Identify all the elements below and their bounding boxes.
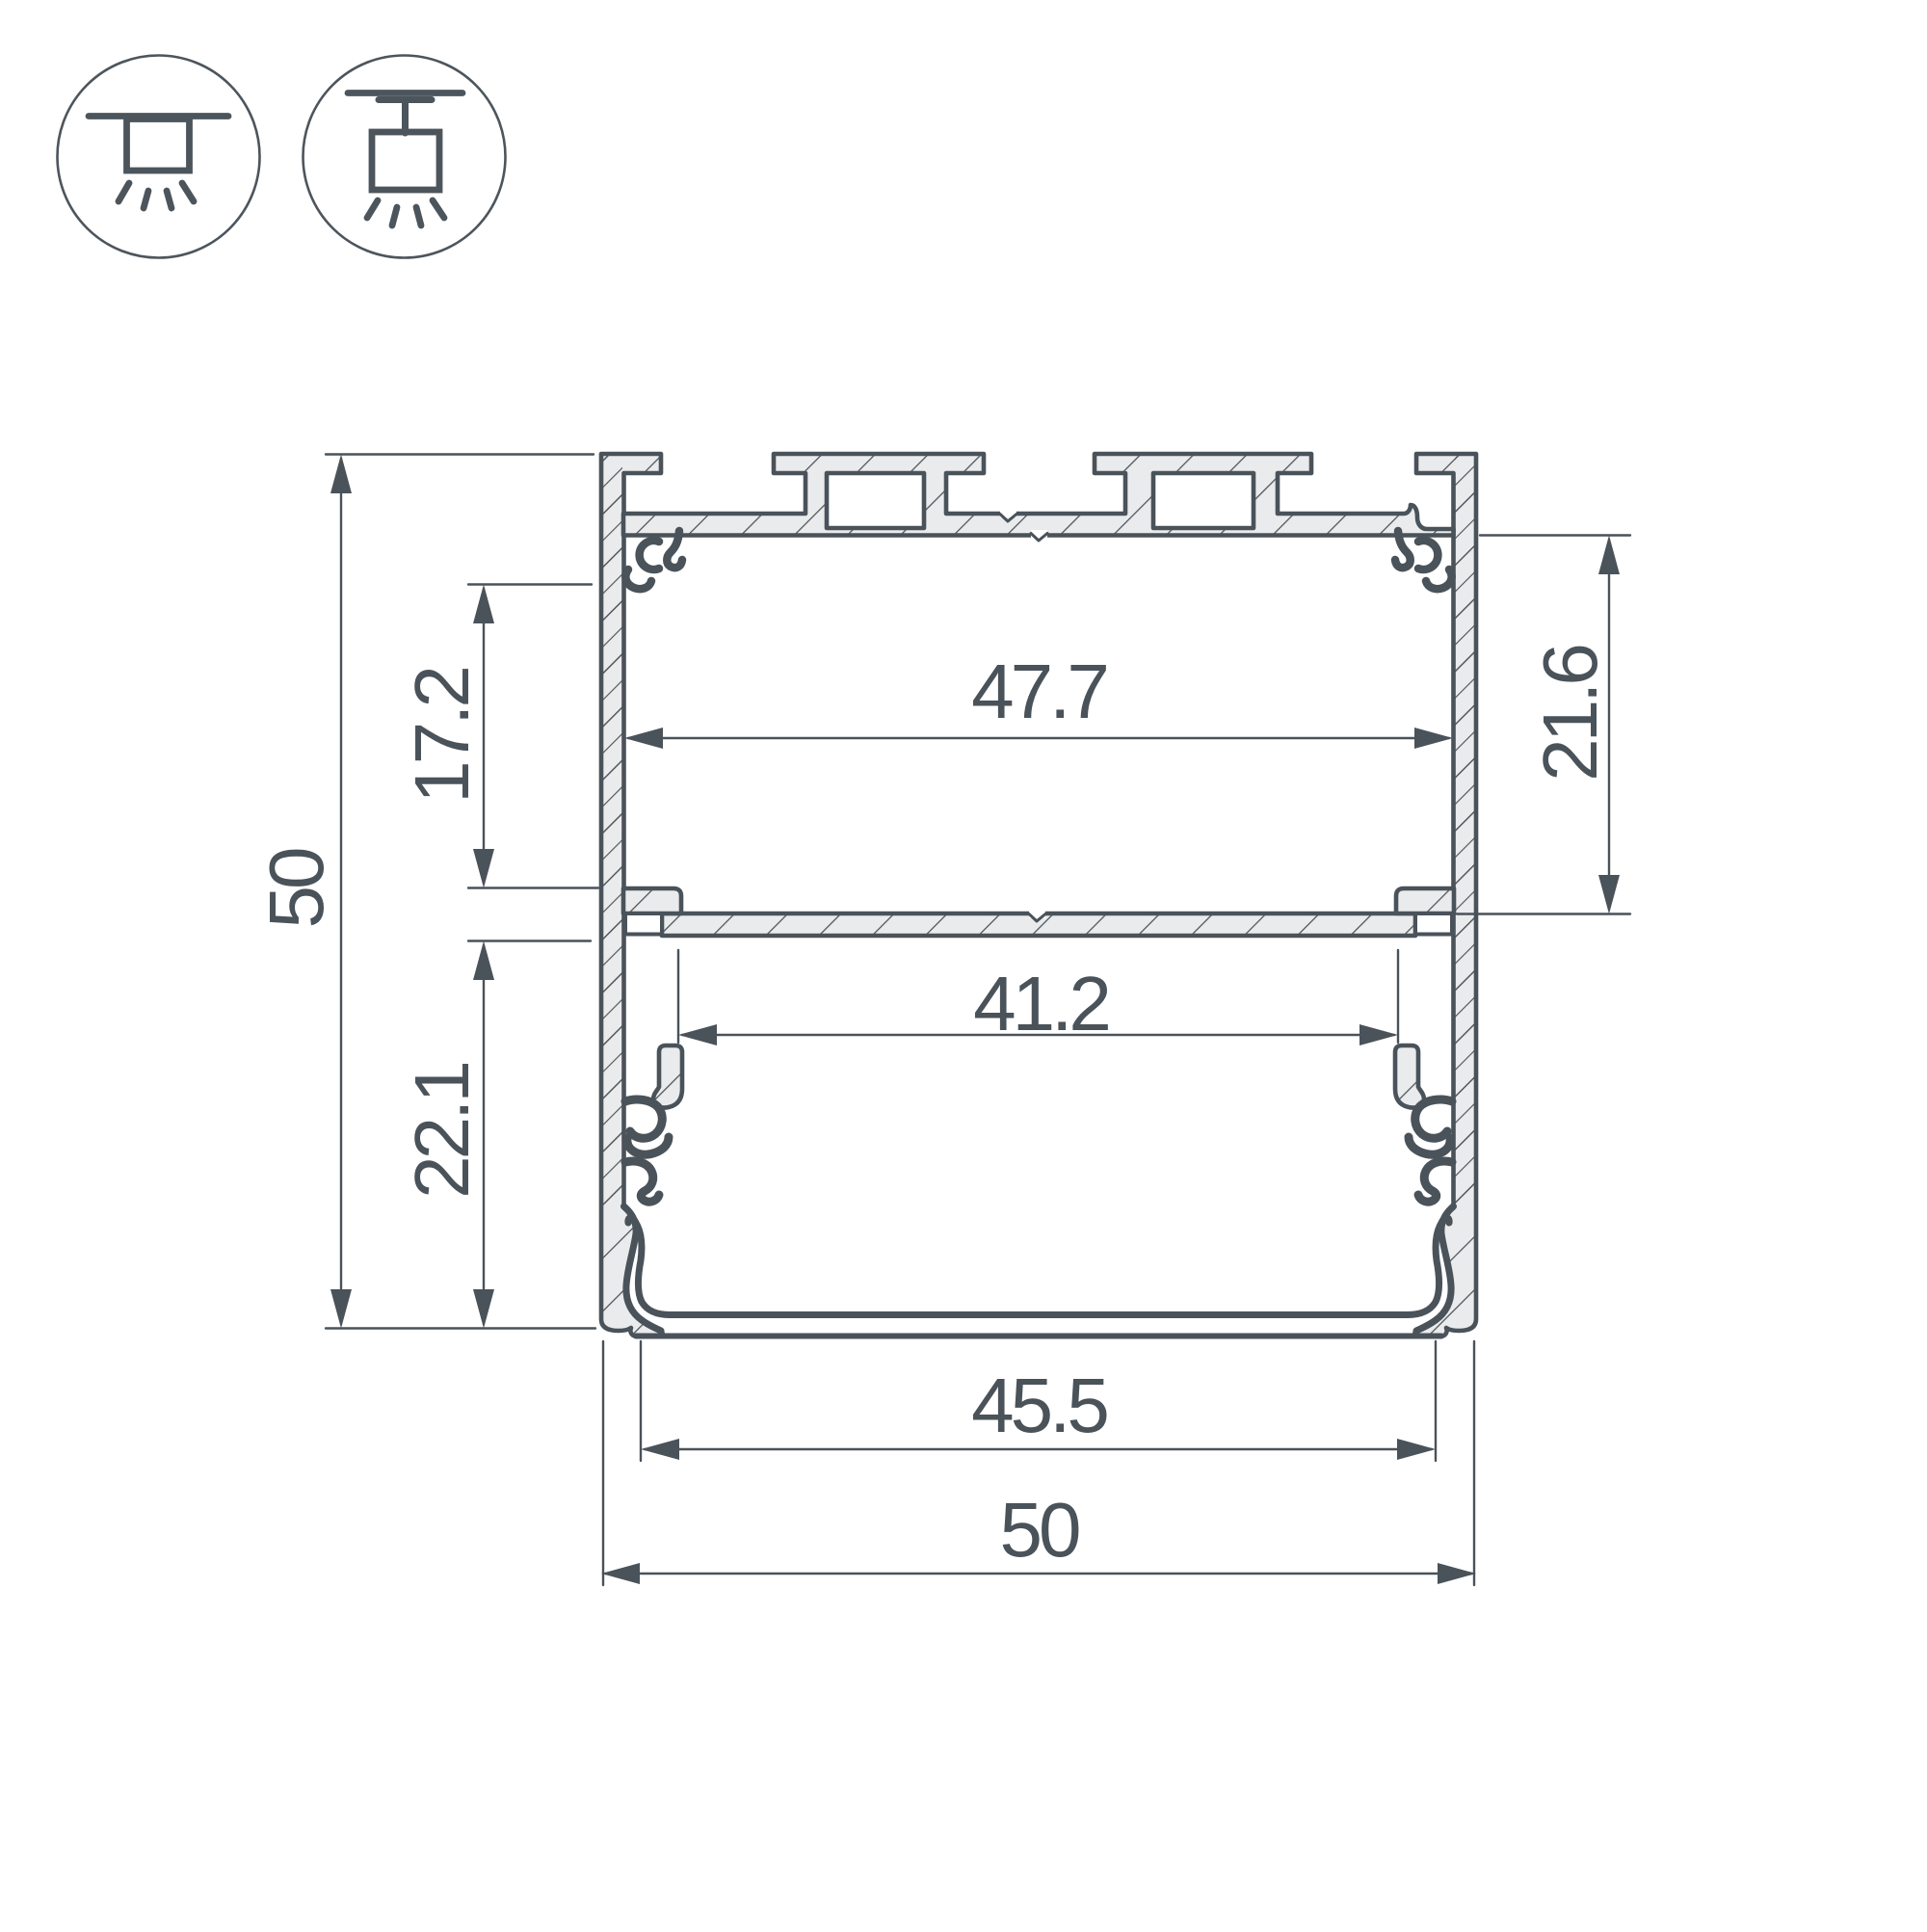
svg-text:50: 50 bbox=[1000, 1487, 1079, 1573]
svg-text:21.6: 21.6 bbox=[1527, 647, 1613, 781]
svg-text:17.2: 17.2 bbox=[399, 669, 485, 804]
svg-text:50: 50 bbox=[253, 849, 339, 928]
svg-text:22.1: 22.1 bbox=[399, 1064, 485, 1199]
svg-text:45.5: 45.5 bbox=[971, 1363, 1107, 1448]
svg-text:47.7: 47.7 bbox=[971, 648, 1106, 734]
svg-text:41.2: 41.2 bbox=[973, 961, 1108, 1046]
